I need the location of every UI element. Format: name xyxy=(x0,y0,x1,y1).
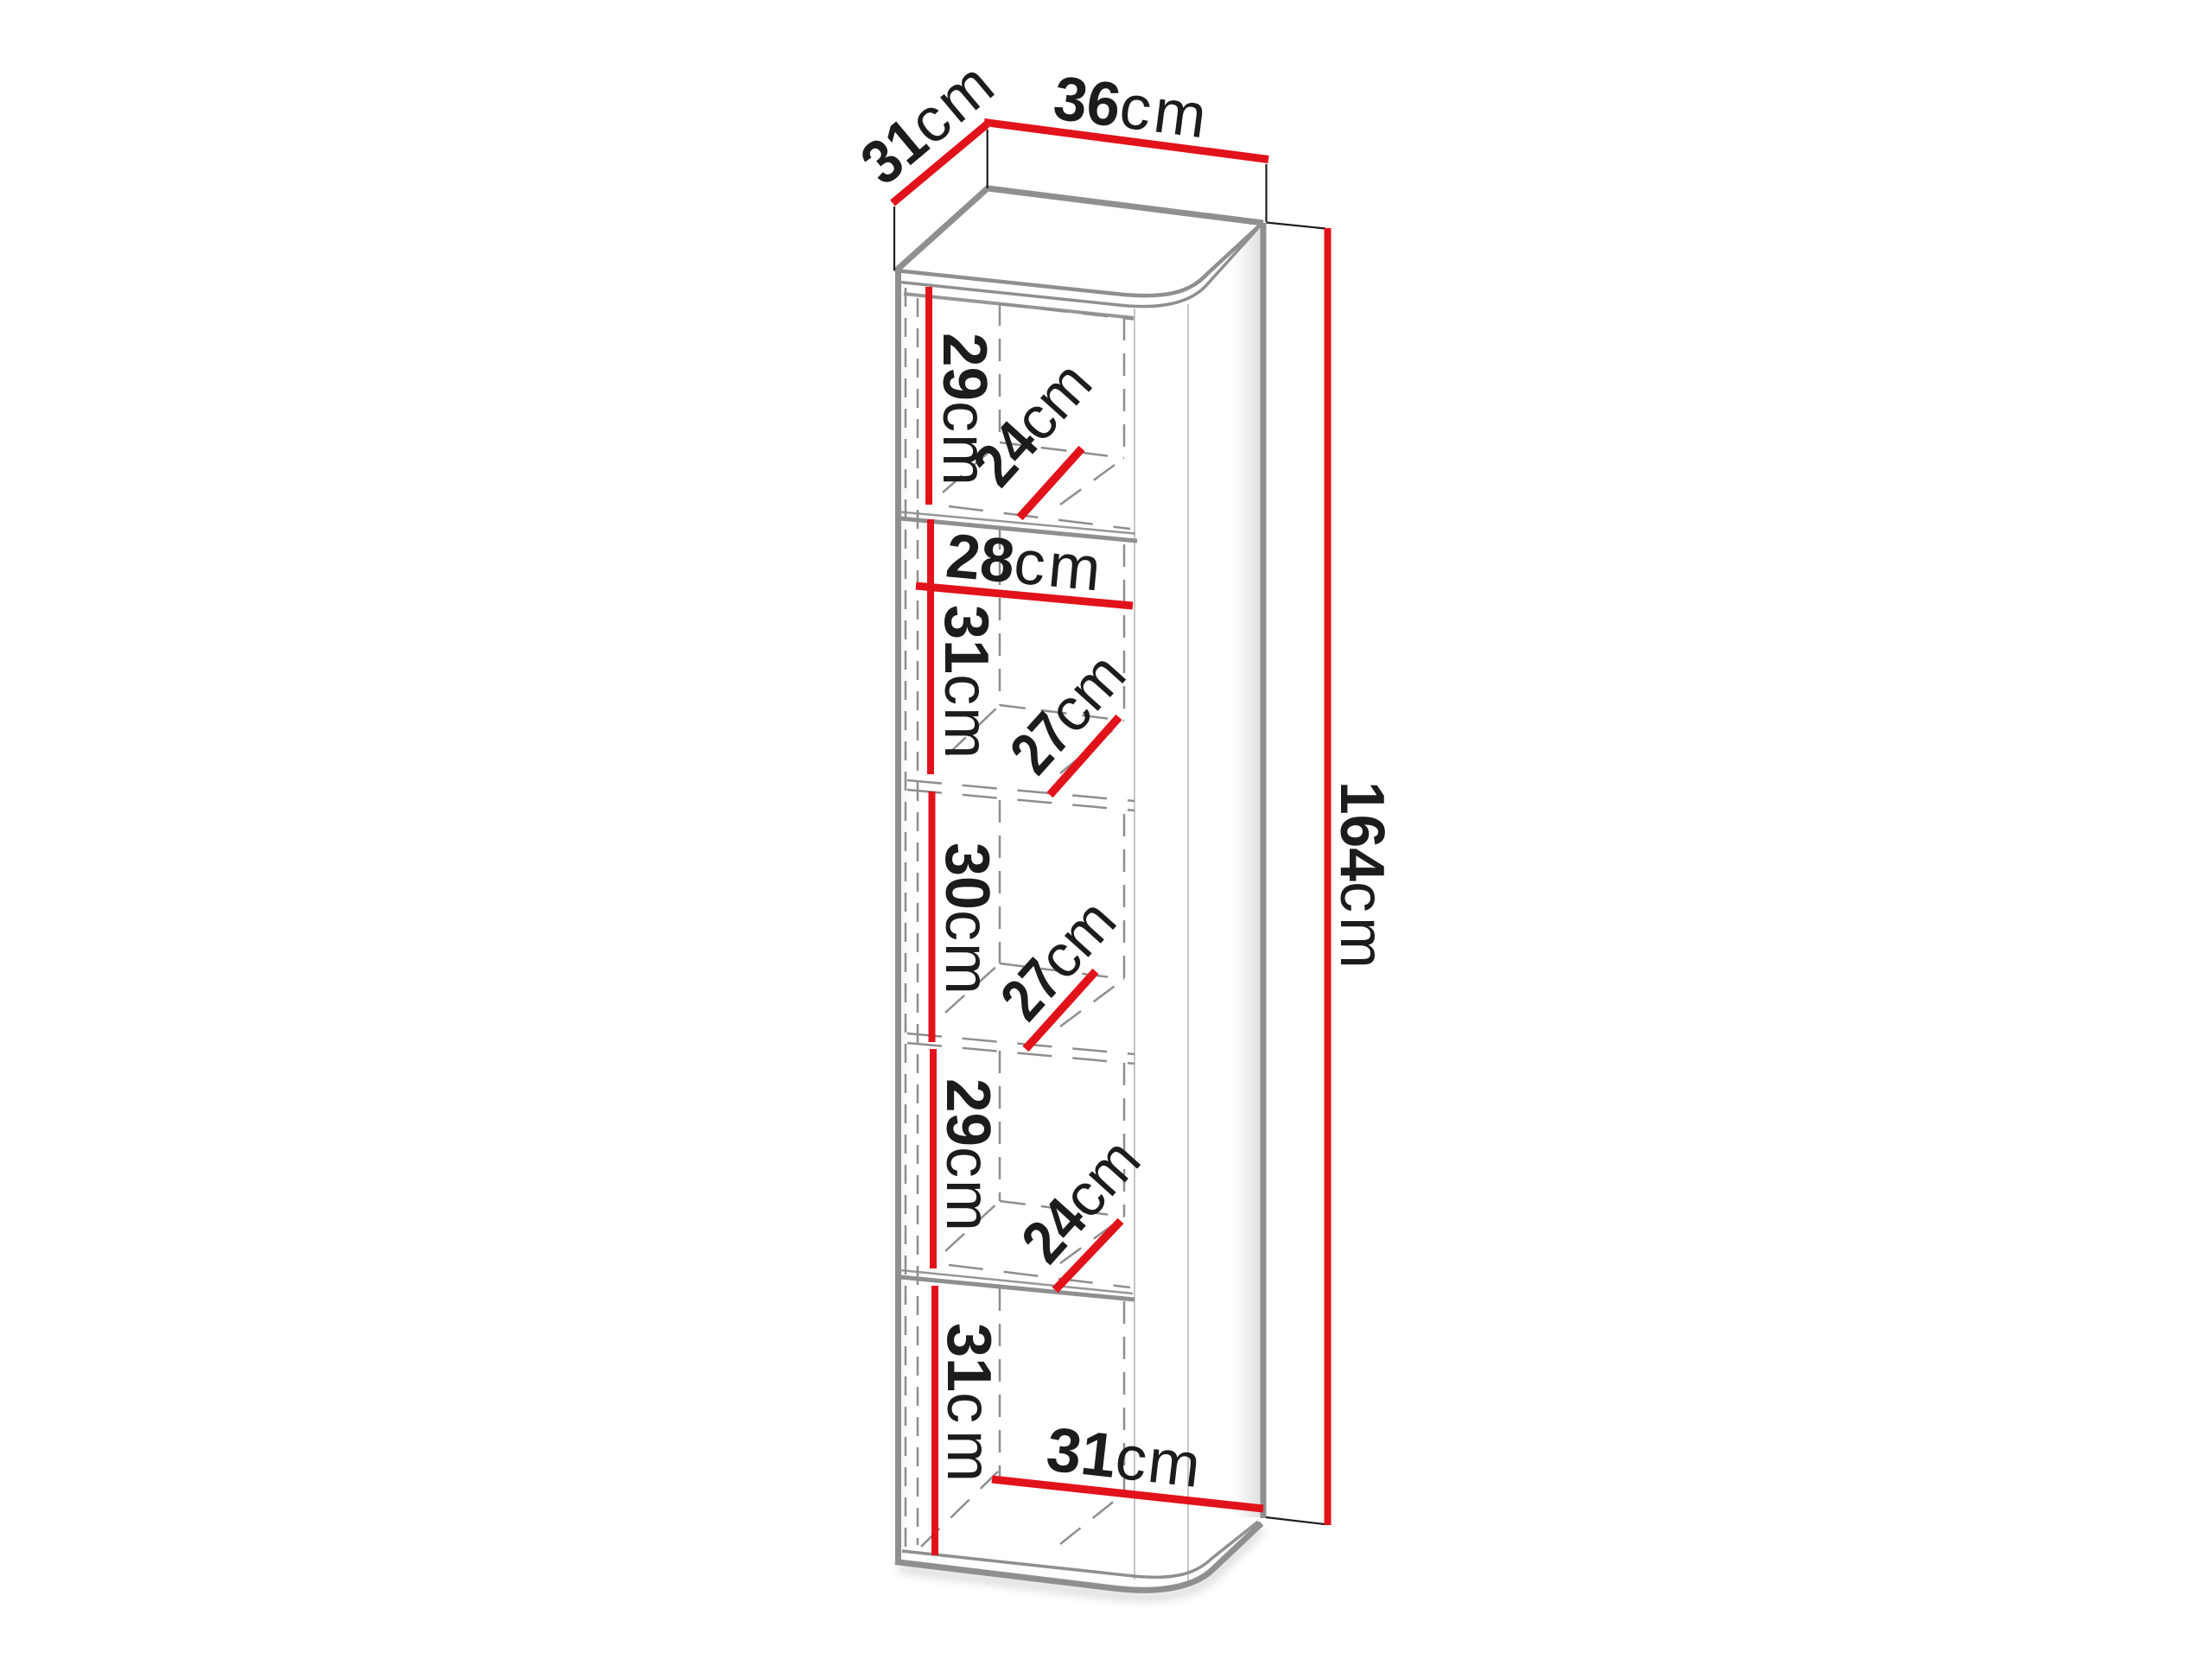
svg-text:164cm: 164cm xyxy=(1327,781,1396,973)
svg-text:31cm: 31cm xyxy=(931,605,1001,760)
svg-text:29cm: 29cm xyxy=(933,1078,1002,1233)
svg-text:30cm: 30cm xyxy=(932,842,1001,996)
svg-text:31cm: 31cm xyxy=(934,1323,1003,1489)
svg-text:28cm: 28cm xyxy=(944,521,1108,605)
